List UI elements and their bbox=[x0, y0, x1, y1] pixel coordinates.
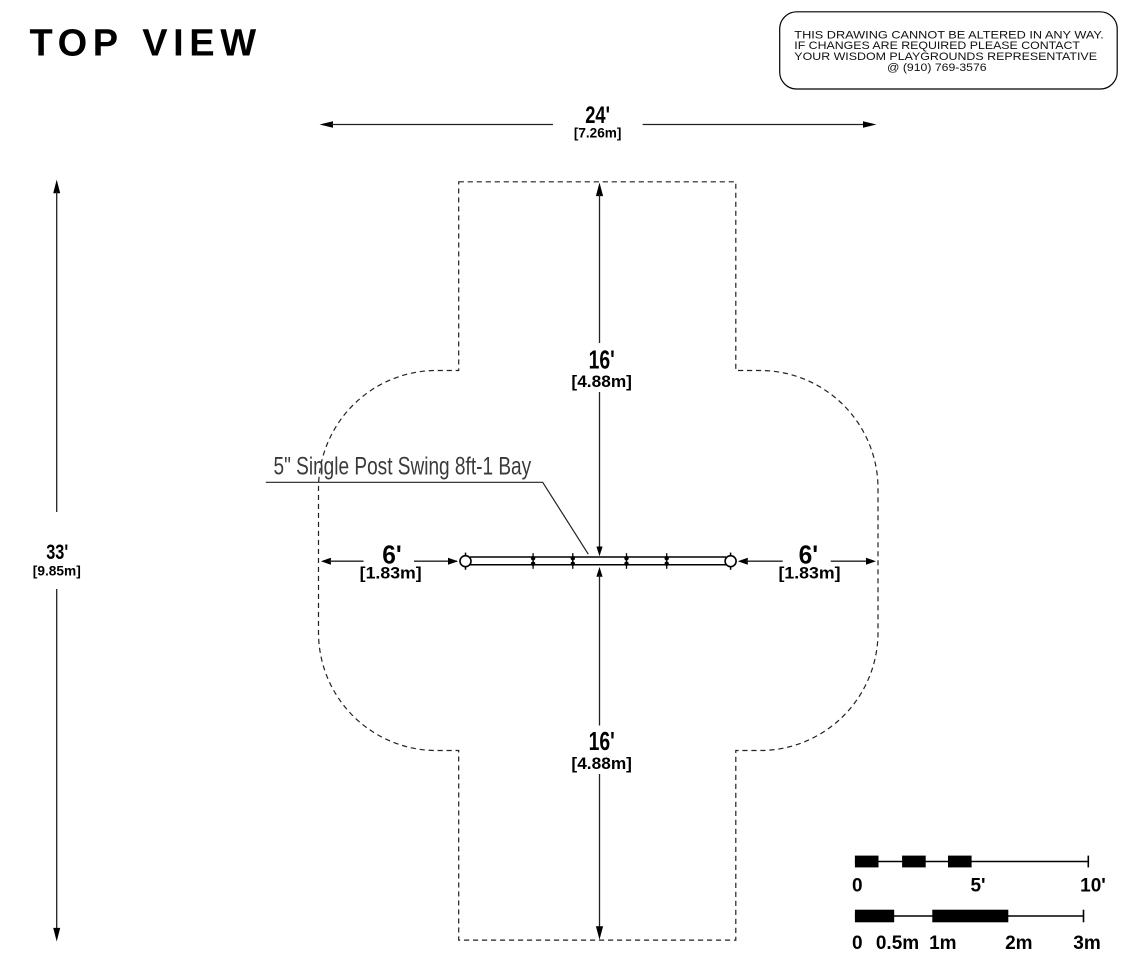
svg-text:33': 33' bbox=[46, 541, 68, 565]
svg-text:0: 0 bbox=[852, 933, 863, 954]
svg-text:24': 24' bbox=[585, 100, 610, 128]
svg-text:5': 5' bbox=[970, 875, 985, 896]
svg-text:[9.85m]: [9.85m] bbox=[33, 564, 81, 579]
svg-text:16': 16' bbox=[589, 345, 615, 374]
svg-text:[4.88m]: [4.88m] bbox=[571, 373, 632, 391]
svg-text:10': 10' bbox=[1080, 875, 1106, 896]
svg-text:16': 16' bbox=[589, 726, 615, 755]
svg-text:[1.83m]: [1.83m] bbox=[360, 565, 422, 583]
svg-text:@ (910) 769-3576: @ (910) 769-3576 bbox=[887, 62, 987, 74]
svg-text:3m: 3m bbox=[1073, 933, 1100, 954]
svg-text:0: 0 bbox=[852, 875, 863, 896]
svg-text:0.5m: 0.5m bbox=[876, 933, 919, 954]
svg-text:[1.83m]: [1.83m] bbox=[779, 565, 841, 583]
svg-text:[7.26m]: [7.26m] bbox=[574, 126, 622, 141]
svg-text:5" Single Post Swing 8ft-1 Bay: 5" Single Post Swing 8ft-1 Bay bbox=[274, 452, 532, 480]
svg-text:1m: 1m bbox=[929, 933, 956, 954]
svg-text:[4.88m]: [4.88m] bbox=[571, 755, 632, 773]
svg-text:TOP VIEW: TOP VIEW bbox=[30, 22, 262, 64]
svg-text:2m: 2m bbox=[1005, 933, 1032, 954]
